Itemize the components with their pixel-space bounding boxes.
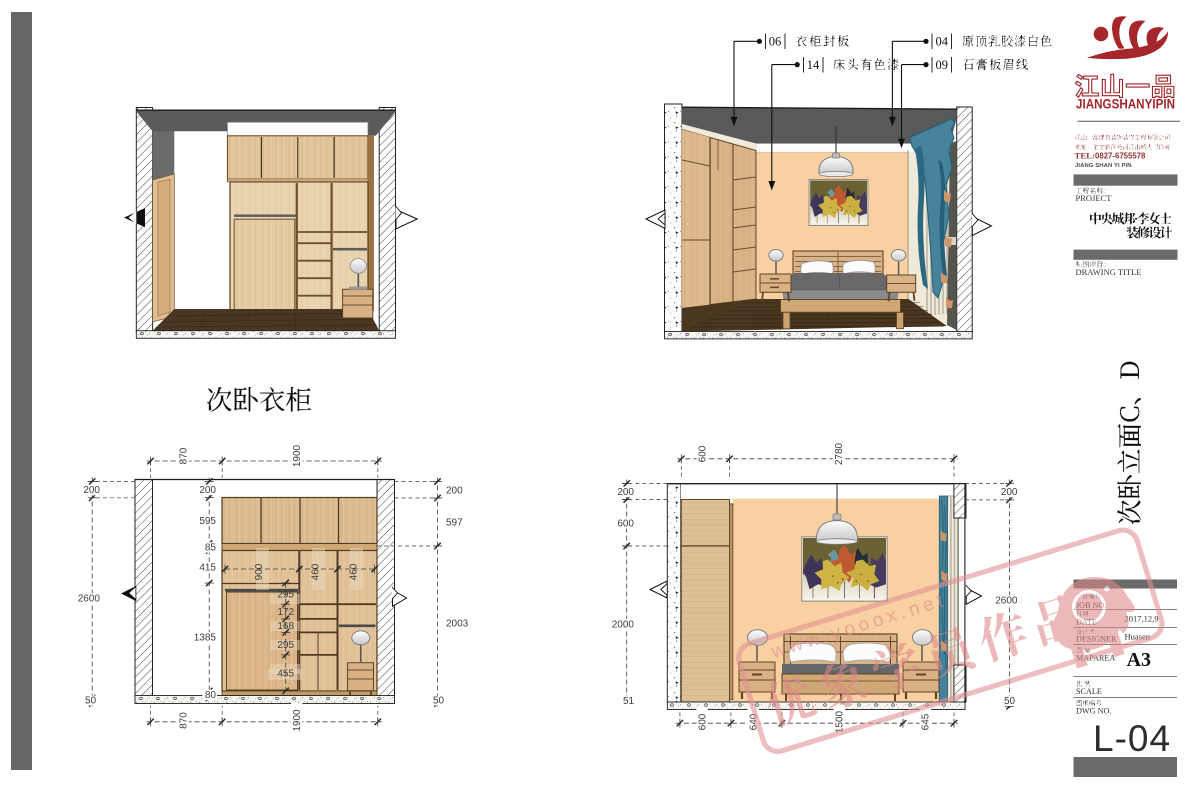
svg-text:2017,12,9: 2017,12,9 (1125, 614, 1159, 624)
svg-text:PROJECT: PROJECT (1076, 193, 1113, 203)
svg-text:DRAWING TITLE: DRAWING TITLE (1076, 267, 1142, 277)
svg-text:200: 200 (199, 485, 216, 496)
svg-text:168: 168 (277, 621, 294, 632)
svg-text:DWG NO.: DWG NO. (1076, 707, 1111, 716)
svg-text:50: 50 (85, 696, 97, 707)
svg-text:50: 50 (1004, 696, 1016, 707)
svg-text:80: 80 (205, 690, 217, 701)
svg-text:JIANG SHAN YI PIN: JIANG SHAN YI PIN (1075, 163, 1132, 169)
svg-text:870: 870 (178, 712, 189, 729)
svg-text:172: 172 (277, 607, 294, 618)
svg-text:06: 06 (769, 35, 782, 49)
svg-text:200: 200 (617, 487, 634, 498)
svg-text:1385: 1385 (194, 633, 217, 644)
svg-text:200: 200 (83, 485, 100, 496)
svg-text:SCALE: SCALE (1076, 687, 1102, 696)
svg-text:14: 14 (807, 58, 820, 72)
svg-text:645: 645 (921, 713, 932, 730)
svg-text:JIANGSHANYIPIN: JIANGSHANYIPIN (1076, 97, 1175, 112)
svg-text:597: 597 (446, 518, 463, 529)
svg-text:455: 455 (277, 669, 294, 680)
svg-text:09: 09 (935, 58, 948, 72)
svg-text:A3: A3 (1127, 649, 1151, 671)
svg-text:L-04: L-04 (1093, 718, 1171, 759)
svg-text:51: 51 (623, 696, 635, 707)
svg-text:2780: 2780 (834, 442, 845, 465)
svg-text:900: 900 (254, 563, 265, 580)
svg-text:600: 600 (617, 518, 634, 529)
svg-text:600: 600 (697, 713, 708, 730)
svg-text:460: 460 (349, 563, 360, 580)
svg-text:460: 460 (311, 563, 322, 580)
svg-text:415: 415 (199, 562, 216, 573)
svg-text:2000: 2000 (612, 620, 635, 631)
svg-text:50: 50 (433, 696, 445, 707)
svg-text:1900: 1900 (292, 709, 303, 732)
svg-text:600: 600 (697, 445, 708, 462)
svg-text:295: 295 (277, 640, 294, 651)
svg-text:1900: 1900 (292, 444, 303, 467)
svg-text:85: 85 (205, 543, 217, 554)
svg-text:2600: 2600 (995, 596, 1018, 607)
svg-text:200: 200 (1001, 487, 1018, 498)
svg-text:2600: 2600 (78, 593, 101, 604)
svg-text:04: 04 (935, 35, 948, 49)
svg-text:870: 870 (178, 447, 189, 464)
svg-text:200: 200 (446, 485, 463, 496)
svg-text:TEL:0827-6755578: TEL:0827-6755578 (1075, 151, 1147, 161)
svg-text:595: 595 (199, 516, 216, 527)
svg-text:2003: 2003 (446, 618, 469, 629)
svg-text:295: 295 (277, 590, 294, 601)
